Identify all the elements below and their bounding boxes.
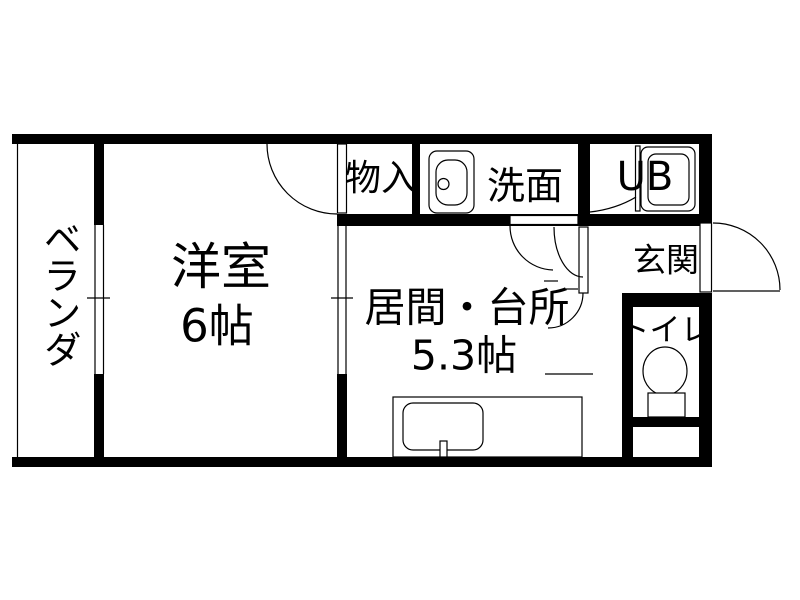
partition-entrance-living xyxy=(579,227,588,293)
room-label-western-room: 洋室 xyxy=(171,242,271,292)
wall-veranda-westernroom-upper xyxy=(94,144,104,225)
kitchen-sink-icon xyxy=(393,397,582,457)
toilet-bowl-icon xyxy=(643,347,687,417)
wall-wash-ub-divider xyxy=(578,144,590,216)
room-label-unit-bath: UB xyxy=(617,157,674,197)
wall-right-upper xyxy=(699,144,712,214)
wall-bottom xyxy=(12,457,712,467)
wall-top xyxy=(12,134,712,144)
wall-pipespace-top xyxy=(622,417,712,427)
wall-westernroom-living-lower xyxy=(337,374,347,457)
room-label-washroom: 洗面 xyxy=(487,167,563,205)
door-arc-storage xyxy=(267,144,337,214)
room-size-living-kitchen: 5.3帖 xyxy=(411,336,517,377)
room-label-storage: 物入 xyxy=(345,161,417,197)
room-label-toilet: トイレ xyxy=(619,316,712,347)
wall-veranda-westernroom-lower xyxy=(94,374,104,457)
wall-entrance-bottom xyxy=(622,293,712,307)
front-door-arc xyxy=(713,223,780,290)
door-arc-washroom xyxy=(510,226,553,270)
room-label-veranda: ベランダ xyxy=(40,219,78,367)
front-door-opening xyxy=(700,223,712,292)
room-size-western-room: 6帖 xyxy=(180,304,254,349)
wash-basin-icon xyxy=(429,151,474,213)
room-label-entrance: 玄関 xyxy=(633,244,699,277)
room-label-living-kitchen: 居間・台所 xyxy=(365,288,570,329)
floorplan-page: ベランダ 洋室 6帖 物入 洗面 UB 玄関 居間・台所 5.3帖 トイレ xyxy=(0,0,800,600)
door-leaf-washroom xyxy=(510,216,578,225)
